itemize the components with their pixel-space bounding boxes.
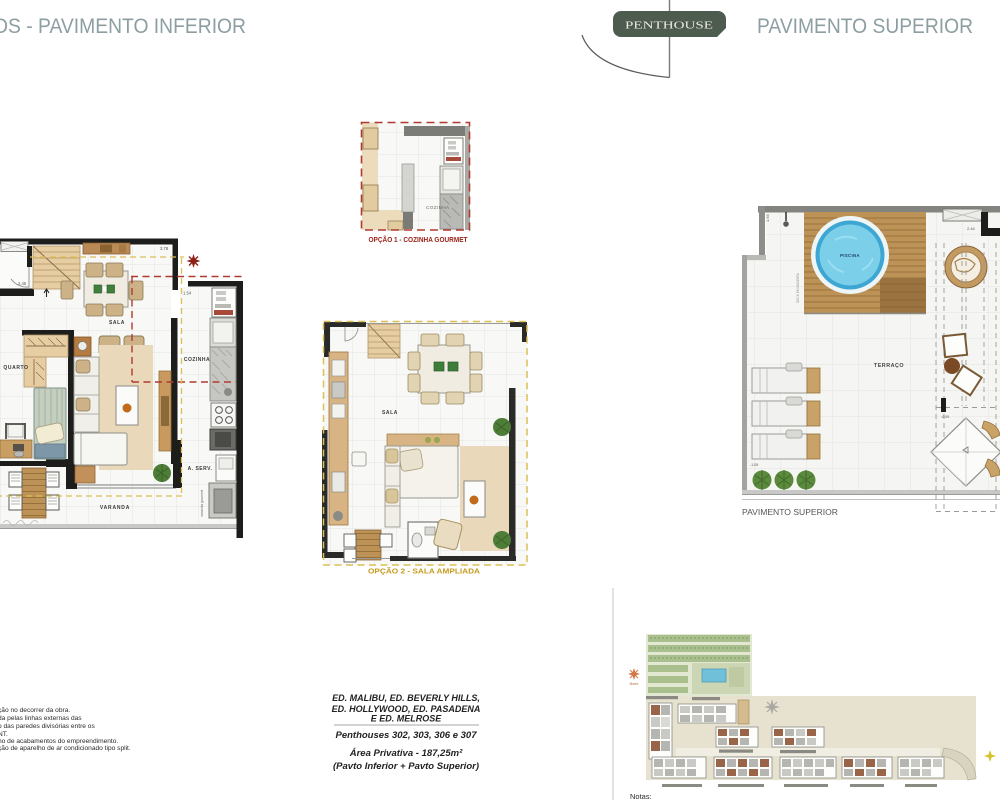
svg-text:2.44: 2.44 [967,226,976,231]
svg-text:varanda gourmet: varanda gourmet [200,490,204,517]
svg-text:A. SERV.: A. SERV. [188,466,213,472]
svg-text:3.78: 3.78 [160,246,169,251]
svg-text:OS - PAVIMENTO INFERIOR: OS - PAVIMENTO INFERIOR [0,14,246,38]
svg-text:PAVIMENTO SUPERIOR: PAVIMENTO SUPERIOR [757,14,973,38]
svg-text:Área Privativa - 187,25m²: Área Privativa - 187,25m² [349,748,463,759]
svg-text:2.45: 2.45 [18,281,27,286]
svg-text:OPÇÃO 2 - SALA AMPLIADA: OPÇÃO 2 - SALA AMPLIADA [368,567,480,576]
svg-text:1.54: 1.54 [183,291,192,296]
svg-text:ED. HOLLYWOOD, ED. PASADENA: ED. HOLLYWOOD, ED. PASADENA [332,704,481,714]
svg-text:Penthouses 302, 303, 306 e 307: Penthouses 302, 303, 306 e 307 [335,730,477,741]
svg-text:PENTHOUSE: PENTHOUSE [625,21,713,32]
svg-text:ho de acabamentos do empreendi: ho de acabamentos do empreendimento. [0,738,118,745]
svg-text:-0.05: -0.05 [941,415,949,419]
svg-text:-1.05: -1.05 [750,463,758,467]
svg-text:OPÇÃO 1 - COZINHA GOURMET: OPÇÃO 1 - COZINHA GOURMET [369,235,469,244]
svg-text:o das paredes divisórias entre: o das paredes divisórias entre os [0,723,95,730]
svg-text:NT.: NT. [0,731,8,738]
svg-text:TERRAÇO: TERRAÇO [874,363,904,369]
svg-text:DECK EM MADEIRA: DECK EM MADEIRA [796,272,800,303]
svg-text:(Pavto Inferior + Pavto Superi: (Pavto Inferior + Pavto Superior) [333,761,479,772]
svg-text:PISCINA: PISCINA [840,253,860,258]
svg-text:PAVIMENTO SUPERIOR: PAVIMENTO SUPERIOR [742,507,838,517]
svg-text:ção no decorrer da obra.: ção no decorrer da obra. [0,707,70,714]
svg-text:ção de aparelho de ar condicio: ção de aparelho de ar condicionado tipo … [0,745,131,752]
svg-text:ED. MALIBU, ED. BEVERLY HILLS,: ED. MALIBU, ED. BEVERLY HILLS, [332,693,480,703]
svg-text:Notas:: Notas: [630,792,652,800]
svg-text:VARANDA: VARANDA [100,505,130,511]
svg-text:da pelas linhas externas das: da pelas linhas externas das [0,715,82,722]
svg-text:COZINHA: COZINHA [426,205,450,210]
svg-text:SALA: SALA [109,320,125,326]
svg-text:E ED. MELROSE: E ED. MELROSE [371,714,443,724]
svg-text:QUARTO: QUARTO [3,365,28,371]
svg-text:1.63: 1.63 [765,213,770,222]
svg-text:SALA: SALA [382,410,398,416]
svg-text:COZINHA: COZINHA [184,357,210,363]
svg-text:Norte: Norte [630,682,639,686]
